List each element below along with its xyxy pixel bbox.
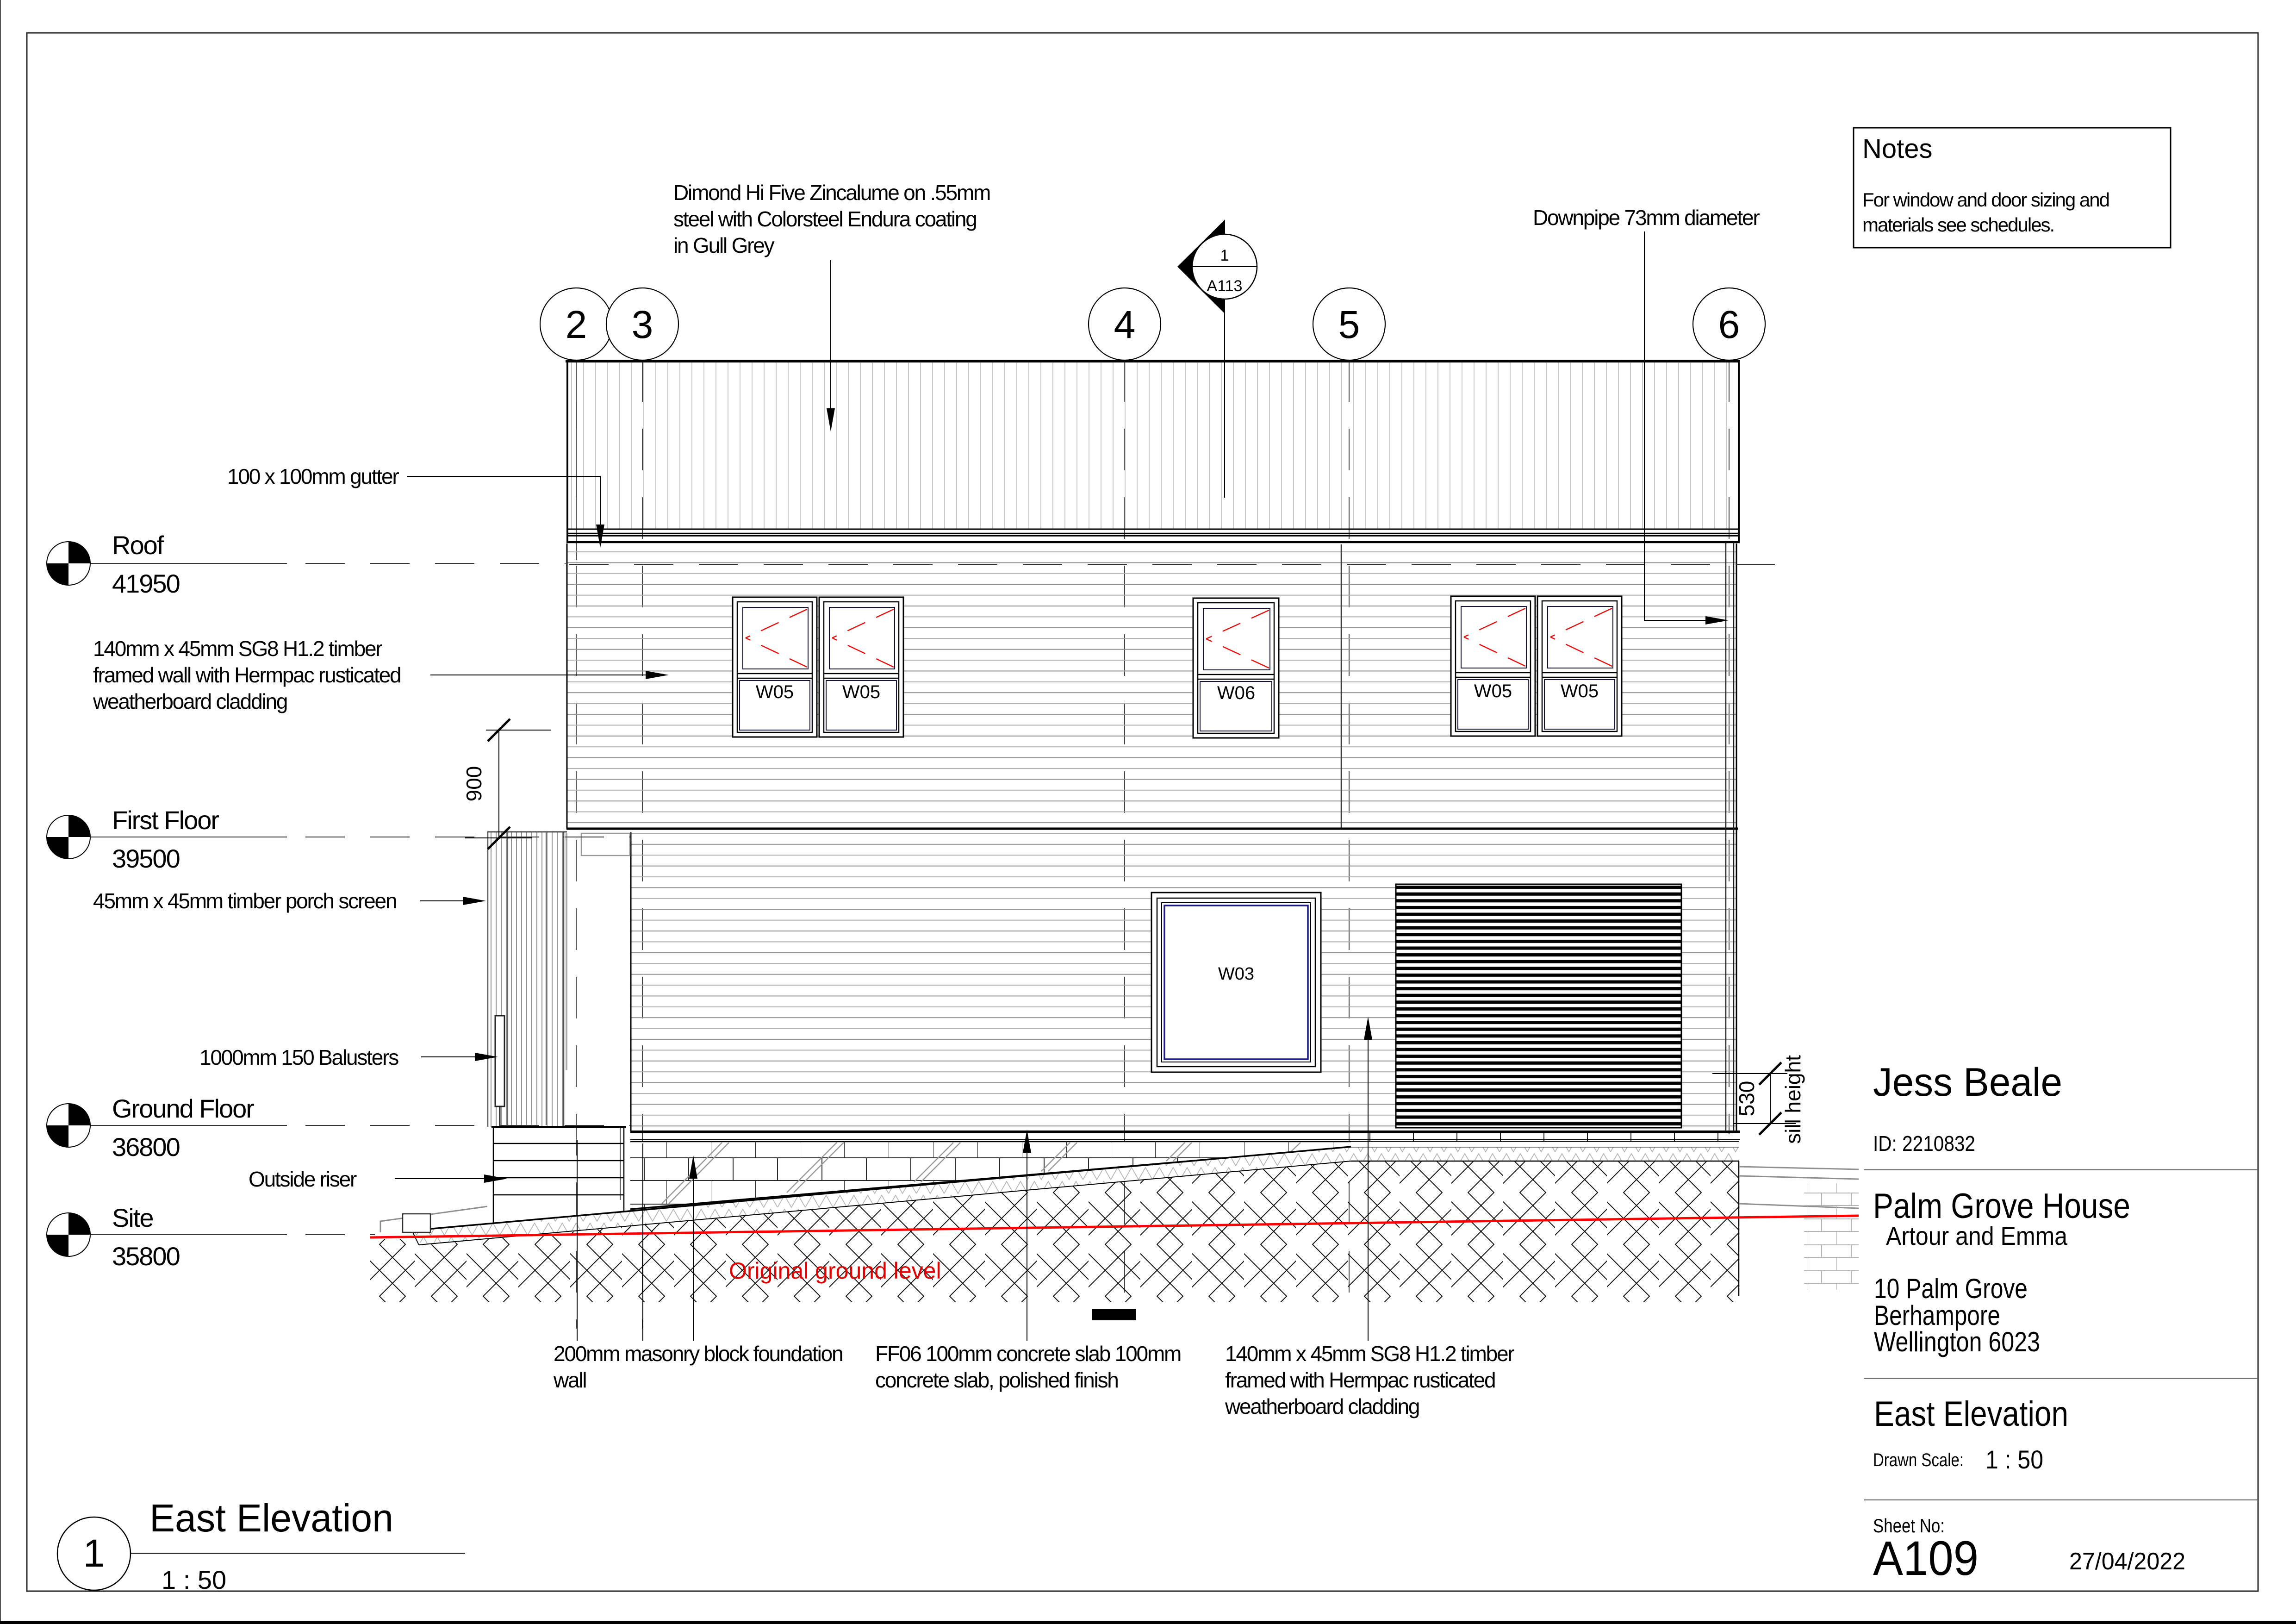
svg-text:W05: W05 [842, 682, 880, 702]
svg-text:Jess Beale: Jess Beale [1873, 1060, 2062, 1105]
svg-text:Site: Site [112, 1203, 153, 1232]
svg-text:A109: A109 [1873, 1531, 1979, 1586]
svg-text:41950: 41950 [112, 569, 180, 598]
svg-text:East Elevation: East Elevation [149, 1496, 393, 1540]
svg-text:in Gull Grey: in Gull Grey [673, 233, 775, 257]
svg-text:5: 5 [1338, 303, 1360, 346]
svg-text:For window and door sizing and: For window and door sizing and [1862, 189, 2109, 211]
svg-text:Drawn Scale:: Drawn Scale: [1873, 1450, 1964, 1470]
svg-text:Original ground level: Original ground level [729, 1258, 941, 1284]
svg-text:wall: wall [553, 1368, 586, 1392]
svg-text:First Floor: First Floor [112, 806, 219, 835]
svg-text:W05: W05 [1474, 681, 1512, 701]
svg-text:framed with Hermpac rusticated: framed with Hermpac rusticated [1225, 1368, 1495, 1392]
svg-text:Outside riser: Outside riser [249, 1167, 357, 1191]
svg-text:Downpipe 73mm diameter: Downpipe 73mm diameter [1533, 206, 1760, 230]
svg-text:W05: W05 [756, 682, 794, 702]
svg-text:Palm Grove House: Palm Grove House [1873, 1187, 2130, 1226]
svg-text:framed wall with Hermpac rusti: framed wall with Hermpac rusticated [93, 663, 400, 687]
svg-text:1000mm 150 Balusters: 1000mm 150 Balusters [199, 1045, 398, 1069]
svg-text:Notes: Notes [1862, 134, 1933, 164]
svg-text:530: 530 [1735, 1081, 1759, 1117]
svg-text:36800: 36800 [112, 1132, 180, 1162]
svg-text:100 x 100mm gutter: 100 x 100mm gutter [227, 464, 399, 488]
svg-text:1: 1 [1220, 247, 1229, 264]
svg-text:900: 900 [462, 766, 486, 802]
svg-text:materials see schedules.: materials see schedules. [1862, 214, 2054, 236]
svg-text:4: 4 [1114, 303, 1136, 346]
svg-text:Roof: Roof [112, 531, 164, 560]
svg-text:FF06 100mm concrete slab 100mm: FF06 100mm concrete slab 100mm [875, 1342, 1181, 1366]
svg-text:ID: 2210832: ID: 2210832 [1873, 1131, 1975, 1156]
svg-text:1: 1 [83, 1531, 105, 1575]
svg-text:2: 2 [566, 303, 587, 346]
svg-text:140mm x 45mm SG8 H1.2 timber: 140mm x 45mm SG8 H1.2 timber [1225, 1342, 1514, 1366]
svg-text:W03: W03 [1218, 964, 1254, 984]
svg-text:200mm masonry block foundation: 200mm masonry block foundation [554, 1342, 842, 1366]
svg-text:weatherboard cladding: weatherboard cladding [1225, 1394, 1419, 1418]
svg-text:45mm x 45mm timber porch scree: 45mm x 45mm timber porch screen [93, 889, 396, 913]
svg-text:W06: W06 [1217, 683, 1255, 703]
svg-text:1 : 50: 1 : 50 [162, 1565, 226, 1594]
svg-text:Artour and Emma: Artour and Emma [1886, 1221, 2068, 1250]
svg-text:10 Palm Grove: 10 Palm Grove [1874, 1273, 2028, 1304]
svg-text:Wellington 6023: Wellington 6023 [1874, 1326, 2040, 1357]
svg-text:W05: W05 [1561, 681, 1599, 701]
svg-text:6: 6 [1718, 303, 1740, 346]
svg-text:35800: 35800 [112, 1242, 180, 1271]
svg-text:sill height: sill height [1781, 1055, 1805, 1144]
svg-text:27/04/2022: 27/04/2022 [2069, 1548, 2185, 1575]
svg-text:3: 3 [632, 303, 653, 346]
svg-text:140mm x 45mm SG8 H1.2 timber: 140mm x 45mm SG8 H1.2 timber [93, 637, 382, 661]
svg-text:steel with Colorsteel Endura c: steel with Colorsteel Endura coating [673, 207, 977, 231]
svg-text:Ground Floor: Ground Floor [112, 1094, 254, 1123]
svg-text:1 : 50: 1 : 50 [1985, 1445, 2043, 1474]
svg-text:A113: A113 [1207, 277, 1243, 295]
svg-text:39500: 39500 [112, 844, 180, 873]
svg-text:Dimond Hi Five Zincalume on .5: Dimond Hi Five Zincalume on .55mm [673, 181, 990, 205]
svg-text:concrete slab, polished finish: concrete slab, polished finish [875, 1368, 1118, 1392]
svg-text:weatherboard cladding: weatherboard cladding [93, 689, 287, 713]
svg-text:East Elevation: East Elevation [1874, 1394, 2068, 1434]
